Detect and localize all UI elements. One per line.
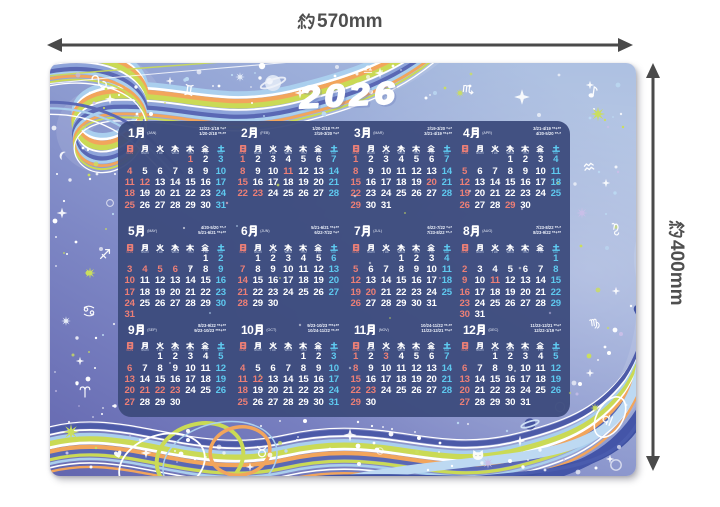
svg-text:2026: 2026	[298, 76, 400, 115]
